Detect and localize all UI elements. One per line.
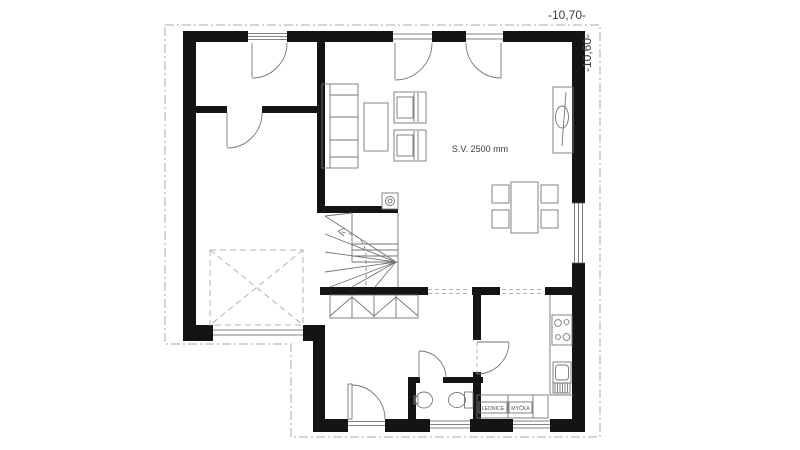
doors <box>227 43 509 419</box>
garage-opening <box>213 330 303 335</box>
opening-living-hall <box>428 290 470 294</box>
door-entrance <box>348 384 385 419</box>
wall-living-hall-b <box>472 287 500 295</box>
fridge-label: LEDNICE <box>482 406 505 412</box>
door-terrace-b <box>466 43 501 78</box>
wardrobe <box>330 295 418 318</box>
dining-chair <box>541 185 558 203</box>
toilet <box>449 392 474 408</box>
wall-hall-left <box>313 333 325 421</box>
dishwasher-label: MYČKA <box>511 405 530 412</box>
burner <box>563 334 570 341</box>
dining-set <box>492 182 558 233</box>
staircase <box>325 213 398 287</box>
ceiling-height-label: S.V. 2500 mm <box>452 144 508 154</box>
wall-interior-vertical-left-rooms <box>317 42 325 213</box>
coffee-table <box>364 103 388 151</box>
burner <box>555 320 562 327</box>
wall-bottom-2 <box>385 419 430 432</box>
wall-interior-between-left-rooms-b <box>262 106 317 113</box>
wall-living-kitchen <box>545 287 585 295</box>
opening-living-kitchen <box>502 290 543 294</box>
wall-garage-bottom-left <box>183 325 213 341</box>
pass-openings <box>428 290 543 375</box>
wc-sink <box>414 392 433 408</box>
floor-plan-page: -10,70- -10,60- S.V. 2500 mm LEDNICE MYČ… <box>0 0 800 450</box>
wall-bottom-1 <box>313 419 348 432</box>
wc-fixtures <box>414 392 473 408</box>
tv-cabinet <box>553 87 573 153</box>
kitchen-sink-basin <box>556 365 569 380</box>
dishwasher-hatch <box>553 383 570 393</box>
windows-and-openings <box>213 34 585 429</box>
burner <box>556 335 561 340</box>
door-kitchen <box>477 342 509 374</box>
sofa <box>322 84 358 168</box>
window-kitchen <box>513 421 550 428</box>
dim-width-label: -10,70- <box>548 8 586 22</box>
dining-table <box>511 182 538 233</box>
window-wc <box>430 421 470 428</box>
walls <box>183 31 585 432</box>
window-right <box>572 203 585 263</box>
door-sill-top-b <box>466 34 503 39</box>
dining-chair <box>492 210 509 228</box>
door-top-left-room <box>252 43 287 78</box>
wall-bottom-4 <box>550 419 585 432</box>
floor-plan-drawing: -10,70- -10,60- S.V. 2500 mm LEDNICE MYČ… <box>0 0 800 450</box>
boundary-line <box>165 25 600 437</box>
wall-top-3 <box>432 31 466 42</box>
door-between-left-rooms <box>227 113 262 148</box>
armchair-1 <box>394 92 426 123</box>
stair-walk-arrow <box>338 228 345 236</box>
wall-top-2 <box>287 31 393 42</box>
wall-living-hall-a <box>320 287 428 295</box>
door-terrace-a <box>395 43 432 80</box>
burner <box>564 320 569 325</box>
garage-door-projection <box>210 250 303 325</box>
door-sill-top-a <box>393 34 432 39</box>
wall-wc-top-b <box>443 377 483 383</box>
chimney <box>382 193 398 209</box>
dining-chair <box>541 210 558 228</box>
entrance-sill <box>348 422 385 426</box>
kitchen-counter <box>477 295 573 418</box>
door-wc <box>419 351 446 378</box>
cooktop <box>552 315 572 345</box>
dining-chair <box>492 185 509 203</box>
window-top-left <box>248 34 287 40</box>
wall-bottom-3 <box>470 419 513 432</box>
wall-wc-top-a <box>408 377 420 383</box>
wall-wc-left <box>408 383 416 420</box>
dim-height-label: -10,60- <box>580 34 594 72</box>
armchair-2 <box>394 130 426 161</box>
wall-interior-between-left-rooms-a <box>196 106 227 113</box>
wall-left <box>183 31 196 341</box>
wall-hall-kitchen-upper <box>473 295 481 340</box>
